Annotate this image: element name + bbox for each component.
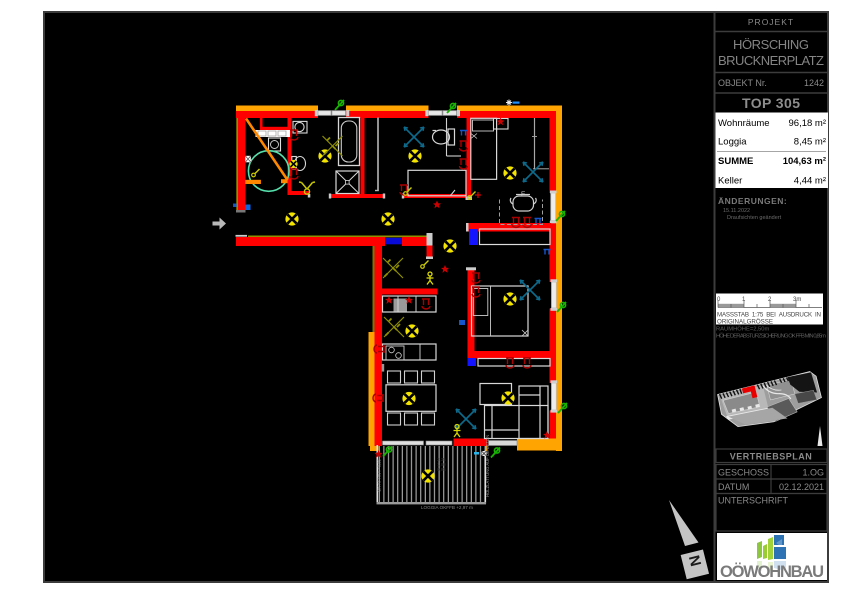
svg-text:OK ATTIKA +0,85: OK ATTIKA +0,85 [377, 458, 382, 492]
svg-text:HOLZLATTUNG AUF UK BETON: HOLZLATTUNG AUF UK BETON [485, 435, 490, 497]
svg-text:LOGGIA OKFFB +2,97 m: LOGGIA OKFFB +2,97 m [421, 505, 473, 510]
svg-text:OBJEKT Nr.: OBJEKT Nr. [718, 78, 767, 88]
svg-text:96,18 m²: 96,18 m² [789, 118, 827, 129]
svg-text:02.12.2021: 02.12.2021 [779, 482, 824, 492]
svg-text:GESCHOSS: GESCHOSS [718, 468, 769, 478]
svg-text:BRUCKNERPLATZ: BRUCKNERPLATZ [718, 53, 824, 68]
svg-text:8,45 m²: 8,45 m² [794, 137, 826, 148]
svg-text:TOP 305: TOP 305 [742, 95, 800, 111]
svg-text:RAUMHÖHE=2,50m: RAUMHÖHE=2,50m [716, 326, 769, 333]
svg-text:OÖWOHNBAU: OÖWOHNBAU [720, 562, 824, 581]
svg-text:ÄNDERUNGEN:: ÄNDERUNGEN: [718, 196, 787, 206]
svg-text:HÖRSCHING: HÖRSCHING [733, 37, 809, 52]
svg-text:Draufsichten geändert: Draufsichten geändert [727, 215, 782, 221]
svg-text:DATUM: DATUM [718, 482, 749, 492]
svg-text:0,95: 0,95 [437, 467, 446, 472]
svg-text:E: E [521, 191, 526, 198]
svg-text:1242: 1242 [804, 78, 824, 88]
svg-text:3m: 3m [793, 297, 801, 303]
svg-text:PROJEKT: PROJEKT [748, 17, 794, 27]
svg-text:1.OG: 1.OG [802, 468, 824, 478]
svg-text:SUMME: SUMME [718, 156, 753, 167]
svg-text:4,44 m²: 4,44 m² [794, 176, 826, 187]
svg-text:Wohnräume: Wohnräume [718, 118, 770, 129]
svg-text:Loggia: Loggia [718, 137, 747, 148]
svg-text:ORIGINALGRÖSSE: ORIGINALGRÖSSE [717, 319, 773, 326]
svg-text:UNTERSCHRIFT: UNTERSCHRIFT [718, 496, 788, 506]
svg-text:VERTRIEBSPLAN: VERTRIEBSPLAN [730, 452, 813, 462]
svg-text:HÖHE DER ABSTURZSICHERUNG OK F: HÖHE DER ABSTURZSICHERUNG OK FFB MIN 0,8… [716, 333, 826, 340]
svg-text:104,63 m²: 104,63 m² [783, 156, 826, 167]
svg-text:MASSSTAB 1:75 BEI AUSDRUCK: MASSSTAB 1:75 BEI AUSDRUCK IN [717, 312, 821, 319]
svg-text:Keller: Keller [718, 176, 742, 187]
svg-text:15.11.2022: 15.11.2022 [723, 208, 750, 214]
